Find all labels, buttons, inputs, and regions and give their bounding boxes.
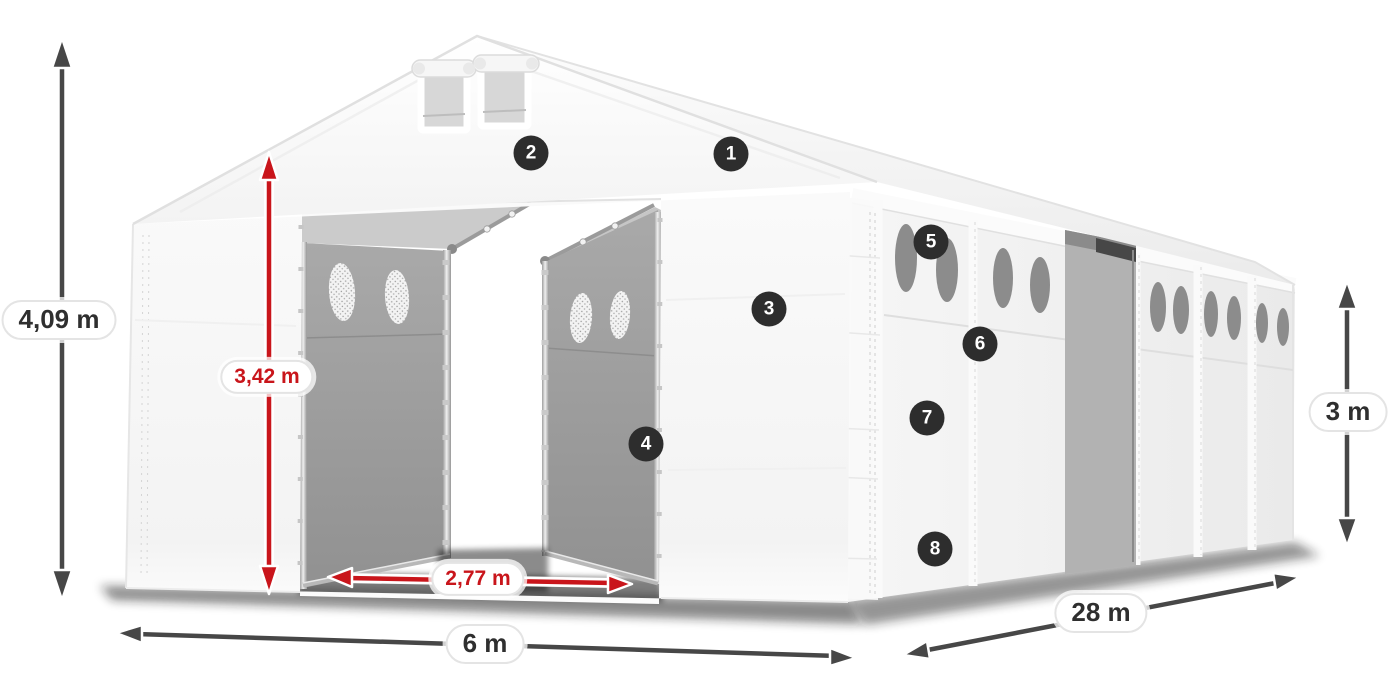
dimension-label-side-height: 3 m	[1309, 392, 1388, 432]
callout-8[interactable]: 8	[918, 532, 953, 567]
callout-1[interactable]: 1	[714, 137, 749, 172]
callout-4[interactable]: 4	[629, 427, 664, 462]
dimension-label-total-height: 4,09 m	[2, 300, 117, 340]
dimension-arrows	[0, 0, 1400, 700]
dimension-label-entrance-height: 3,42 m	[220, 360, 313, 394]
dimension-label-entrance-width: 2,77 m	[431, 562, 524, 596]
dimension-label-length: 28 m	[1054, 593, 1147, 633]
callout-5[interactable]: 5	[914, 225, 949, 260]
dimension-label-front-width: 6 m	[446, 624, 525, 664]
tent-dimension-diagram: 4,09 m 3,42 m 2,77 m 6 m 28 m 3 m 1 2 3 …	[0, 0, 1400, 700]
callout-3[interactable]: 3	[752, 292, 787, 327]
callout-6[interactable]: 6	[963, 327, 998, 362]
callout-7[interactable]: 7	[910, 401, 945, 436]
callout-2[interactable]: 2	[514, 136, 549, 171]
